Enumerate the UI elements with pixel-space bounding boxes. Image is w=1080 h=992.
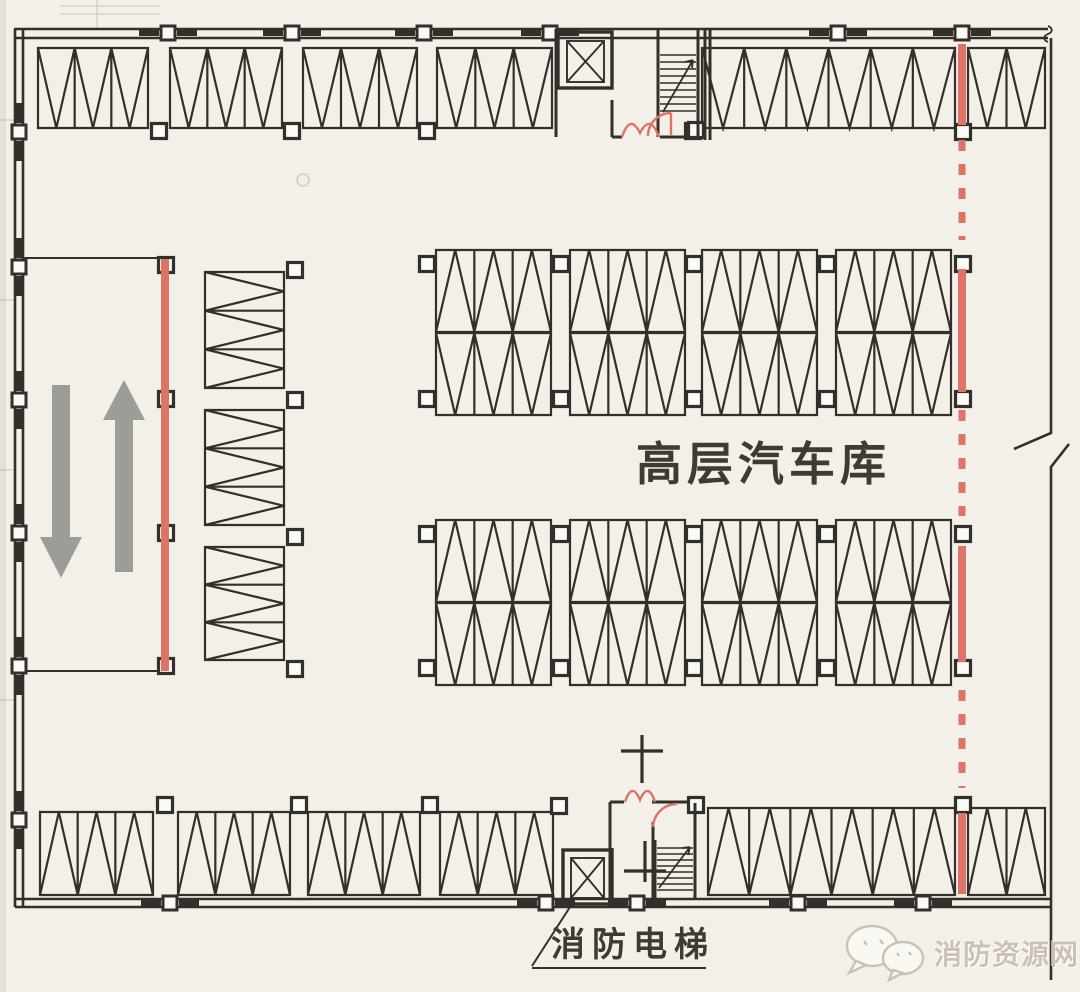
column [161, 26, 175, 40]
column [16, 675, 22, 695]
parking-stall-bay [40, 812, 153, 895]
parking-stall-bay [440, 812, 553, 895]
watermark-text: 消防资源网 [934, 933, 1079, 973]
parking-stall-bay [570, 333, 685, 415]
right-wall-with-break [1014, 38, 1069, 980]
column [820, 257, 835, 272]
column [423, 798, 438, 813]
parking-stall-bay [836, 250, 951, 332]
parking-stall-bay [570, 603, 685, 685]
column [158, 798, 173, 813]
column [687, 527, 702, 542]
column [420, 124, 435, 139]
scan-artifacts [0, 0, 309, 992]
column [12, 260, 26, 274]
column [16, 504, 22, 524]
parking-stall-bay [436, 520, 551, 602]
column [420, 392, 435, 407]
column [956, 798, 971, 813]
up-arrow-icon [103, 380, 145, 572]
fire-elevator-label: 消防电梯 [551, 928, 715, 962]
column [971, 30, 991, 36]
column [820, 527, 835, 542]
parking-stall-bay [836, 603, 951, 685]
column [552, 799, 567, 814]
column [554, 392, 569, 407]
floor-plan-canvas [0, 0, 1080, 992]
column [16, 371, 22, 391]
column [420, 661, 435, 676]
column [16, 791, 22, 811]
column [16, 409, 22, 429]
column [820, 392, 835, 407]
column [163, 896, 177, 910]
column [956, 392, 971, 407]
parking-stall-bay [708, 808, 955, 895]
column [554, 527, 569, 542]
column [847, 30, 867, 36]
column [433, 30, 453, 36]
wechat-icon [847, 926, 923, 980]
column [288, 530, 303, 545]
parking-stall-bay [702, 333, 817, 415]
column [916, 896, 930, 910]
column [12, 125, 26, 139]
parking-stall-bay [436, 603, 551, 685]
parking-stall-bay [205, 272, 284, 388]
parking-stall-bay [570, 520, 685, 602]
column [285, 124, 300, 139]
column [16, 542, 22, 562]
garage-type-label: 高层汽车库 [636, 441, 891, 487]
parking-stall-bay [436, 250, 551, 332]
parking-stall-bay [436, 333, 551, 415]
column [152, 124, 167, 139]
ramp-area [23, 258, 160, 671]
column [420, 527, 435, 542]
column [16, 103, 22, 123]
ramp-outline [23, 258, 160, 671]
floor-plan-page: 高层汽车库 消防电梯 消防资源网 [0, 0, 1080, 992]
column [554, 661, 569, 676]
column [139, 30, 159, 36]
column [417, 26, 431, 40]
column [539, 896, 553, 910]
column [12, 393, 26, 407]
column [285, 26, 299, 40]
column [288, 662, 303, 677]
column [12, 813, 26, 827]
column [820, 661, 835, 676]
parking-stall-bay [38, 48, 148, 128]
column [956, 125, 971, 140]
parking-stall-bay [170, 48, 282, 128]
parking-stall-bay [205, 410, 284, 525]
column [769, 900, 789, 906]
parking-stall-bay [437, 48, 552, 128]
column [16, 637, 22, 657]
column [955, 26, 969, 40]
column [956, 661, 971, 676]
column [263, 30, 283, 36]
parking-stall-bay [968, 48, 1045, 128]
down-arrow-icon [40, 385, 82, 578]
column [288, 263, 303, 278]
fire-elevator-icon [571, 858, 604, 898]
column [554, 257, 569, 272]
column [809, 30, 829, 36]
stairs-icon [658, 29, 698, 137]
column [420, 257, 435, 272]
column [16, 238, 22, 258]
column [12, 526, 26, 540]
column [16, 829, 22, 849]
parking-stall-bay [702, 520, 817, 602]
column [831, 26, 845, 40]
column [521, 30, 541, 36]
parking-stall-bay [570, 250, 685, 332]
parking-stall-bay [968, 808, 1045, 895]
column [179, 900, 199, 906]
column [687, 661, 702, 676]
elevator-icon [567, 41, 604, 82]
column [791, 896, 805, 910]
column [12, 659, 26, 673]
column [933, 30, 953, 36]
column [894, 900, 914, 906]
column [630, 896, 644, 910]
column [301, 30, 321, 36]
parking-stall-bay [702, 250, 817, 332]
parking-stall-bay [178, 812, 290, 895]
parking-stall-bay [205, 547, 284, 660]
column [16, 276, 22, 296]
fire-door-arc-icon [622, 113, 671, 137]
parking-stall-bay [702, 48, 955, 128]
column [646, 900, 666, 906]
column [956, 527, 971, 542]
outer-walls [14, 26, 1069, 980]
column [16, 141, 22, 161]
column [687, 392, 702, 407]
column [517, 900, 537, 906]
column [932, 900, 952, 906]
fire-door-arc-icon [625, 791, 677, 827]
parking-stall-bay [303, 48, 417, 128]
parking-stall-bay [836, 333, 951, 415]
column [177, 30, 197, 36]
column [807, 900, 827, 906]
column [141, 900, 161, 906]
parking-stall-bay [702, 603, 817, 685]
column [288, 393, 303, 408]
column [689, 123, 704, 138]
column [292, 798, 307, 813]
parking-stall-bay [836, 520, 951, 602]
column [395, 30, 415, 36]
parking-stall-bay [308, 812, 420, 895]
column [687, 257, 702, 272]
parking-stalls [38, 48, 1045, 895]
